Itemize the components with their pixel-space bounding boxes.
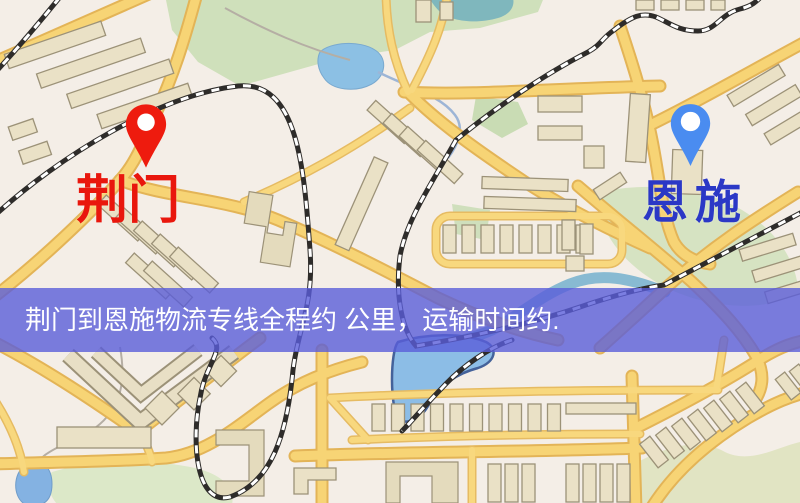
origin-city-label: 荆门 — [76, 175, 180, 227]
pond — [318, 43, 384, 89]
destination-pin-icon[interactable] — [668, 101, 713, 169]
map-screenshot: 荆门 恩施 荆门到恩施物流专线全程约 公里，运输时间约. — [0, 0, 800, 503]
park-small-1 — [472, 96, 528, 138]
destination-city-label: 恩施 — [642, 179, 748, 225]
map-canvas[interactable] — [0, 0, 800, 503]
route-info-banner: 荆门到恩施物流专线全程约 公里，运输时间约. — [0, 288, 800, 352]
origin-pin-icon[interactable] — [123, 103, 169, 169]
route-info-text: 荆门到恩施物流专线全程约 公里，运输时间约. — [25, 288, 559, 352]
